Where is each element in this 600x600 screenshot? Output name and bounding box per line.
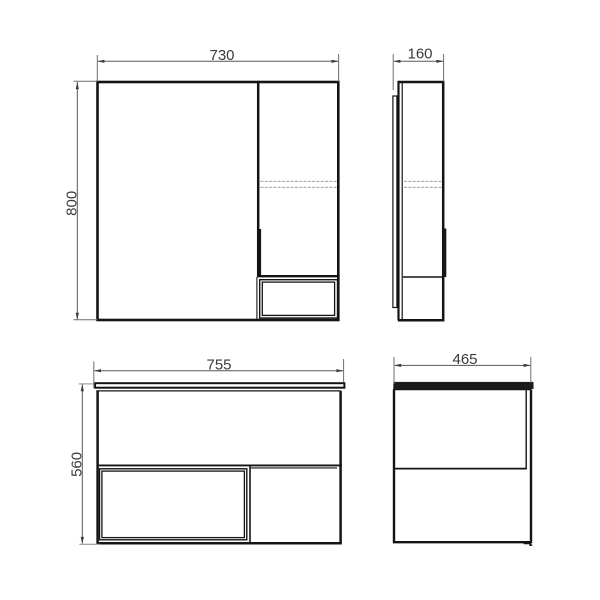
- svg-text:160: 160: [407, 46, 432, 63]
- svg-text:800: 800: [63, 191, 80, 216]
- svg-text:560: 560: [68, 452, 85, 477]
- svg-text:730: 730: [209, 47, 234, 64]
- svg-text:755: 755: [206, 356, 231, 373]
- svg-text:465: 465: [452, 351, 477, 368]
